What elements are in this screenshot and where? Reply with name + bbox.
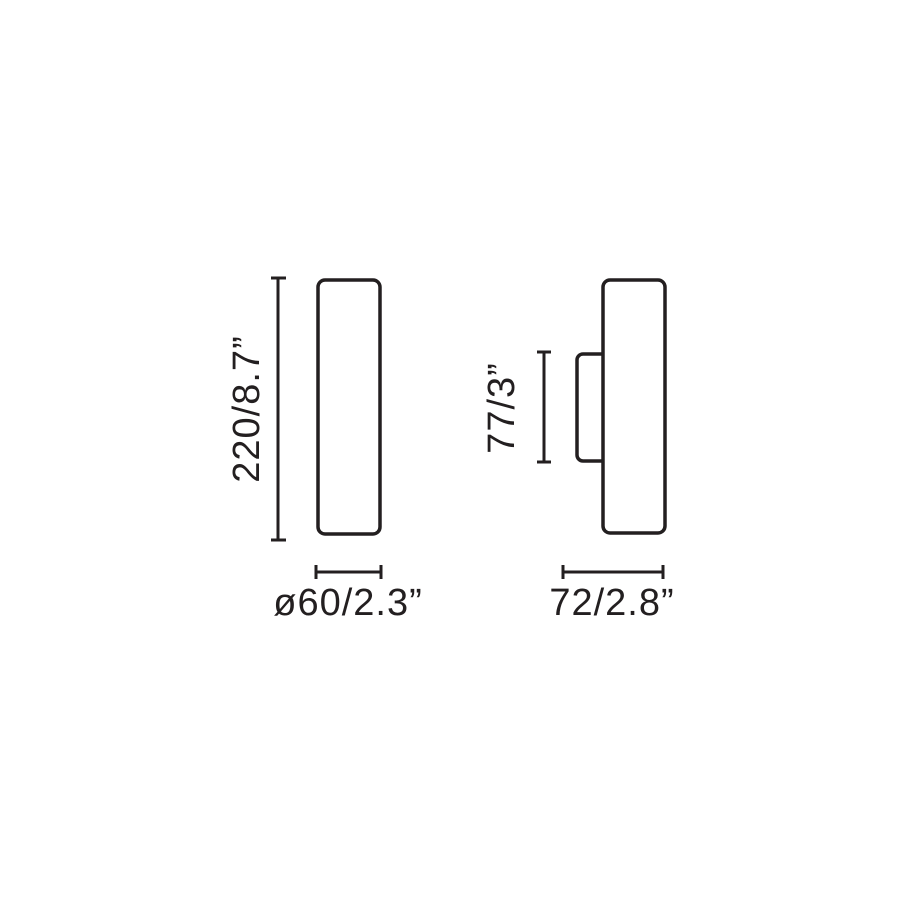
front-diameter-dimension-line xyxy=(316,565,381,579)
diagram-canvas: 220/8.7” ø60/2.3” 77/3” 72/2.8” xyxy=(0,0,900,900)
dimension-drawing: 220/8.7” ø60/2.3” 77/3” 72/2.8” xyxy=(0,0,900,900)
side-bracket-height-dimension-line xyxy=(537,352,551,462)
side-bracket-height-dimension-label: 77/3” xyxy=(481,362,523,454)
front-height-dimension-label: 220/8.7” xyxy=(226,335,268,482)
front-view-body xyxy=(318,280,380,534)
front-diameter-dimension-label: ø60/2.3” xyxy=(273,582,423,624)
front-height-dimension-line xyxy=(271,278,286,540)
side-view-body xyxy=(603,280,665,533)
side-depth-dimension-line xyxy=(563,565,663,579)
side-depth-dimension-label: 72/2.8” xyxy=(549,582,674,624)
